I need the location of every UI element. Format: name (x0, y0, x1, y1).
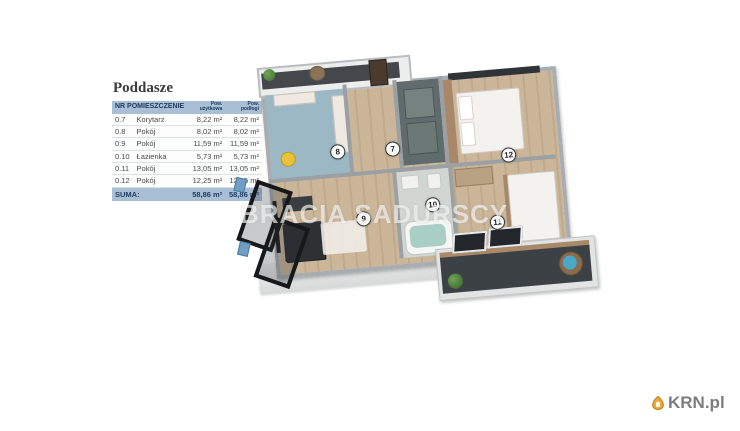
listing-image: Poddasze NR POMIESZCZENIE Pow. użytkowa … (0, 0, 740, 431)
agency-watermark: BRACIA SADURSCY (240, 199, 500, 230)
krn-logo: KRN.pl (650, 393, 725, 413)
table-row: 0.11 Pokój 13,05 m² 13,05 m² (112, 163, 262, 175)
closet-panel (406, 121, 439, 155)
krn-logo-text: KRN.pl (668, 393, 725, 413)
table-header-row: NR POMIESZCZENIE Pow. użytkowa Pow. podł… (112, 101, 262, 114)
bathroom-sink (401, 174, 420, 190)
house-icon (650, 395, 666, 411)
pillow (460, 121, 476, 146)
table-row: 0.8 Pokój 8,02 m² 8,02 m² (112, 125, 262, 137)
balcony-glass-door (452, 231, 487, 254)
table-row: 0.10 Łazienka 5,73 m² 5,73 m² (112, 150, 262, 162)
closet-panel (403, 87, 436, 120)
skylight-glass (237, 241, 251, 257)
door-panel (368, 59, 388, 86)
floor-title: Poddasze (113, 80, 262, 97)
header-area-usable: Pow. użytkowa (189, 101, 226, 114)
room-11-wardrobe (454, 166, 493, 187)
table-row: 0.7 Korytarz 8,22 m² 8,22 m² (112, 114, 262, 126)
toilet (427, 172, 442, 189)
table-row: 0.9 Pokój 11,59 m² 11,59 m² (112, 138, 262, 150)
header-rooms: NR POMIESZCZENIE (112, 101, 189, 114)
floorplan-3d: 7 8 9 10 11 12 (242, 51, 607, 330)
pillow (458, 95, 474, 120)
